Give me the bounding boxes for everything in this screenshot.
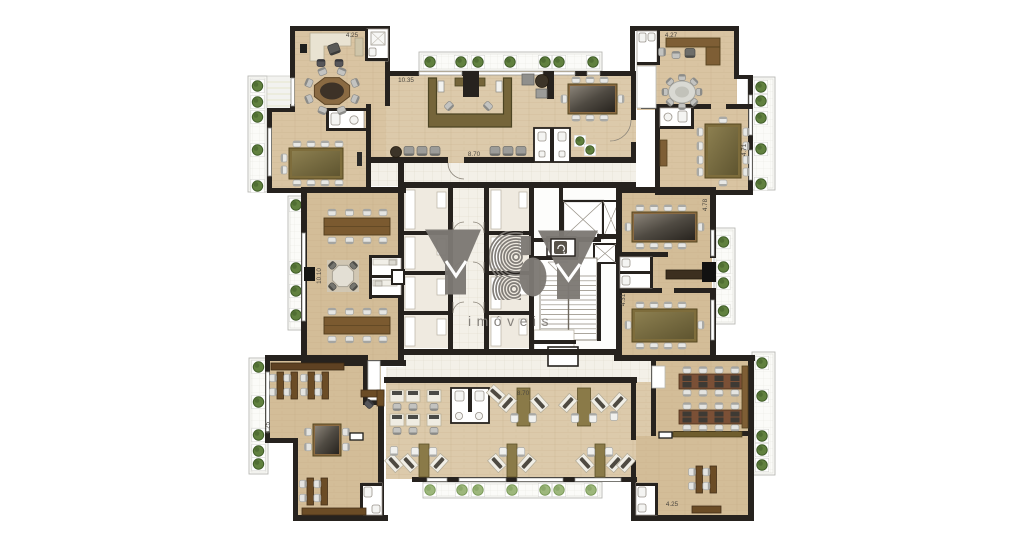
svg-text:4.71: 4.71 (741, 143, 748, 156)
svg-text:4.31: 4.31 (620, 293, 627, 306)
svg-text:4.25: 4.25 (666, 501, 679, 508)
svg-text:10.35: 10.35 (398, 77, 414, 84)
svg-text:4.25: 4.25 (265, 421, 272, 434)
svg-text:8.70: 8.70 (468, 151, 481, 158)
svg-text:imóveis: imóveis (468, 313, 554, 329)
svg-text:10.10: 10.10 (316, 268, 323, 284)
svg-text:8.70: 8.70 (517, 390, 530, 397)
svg-text:4.27: 4.27 (665, 32, 678, 39)
svg-text:4.78: 4.78 (702, 198, 709, 211)
svg-text:4.25: 4.25 (346, 32, 359, 39)
